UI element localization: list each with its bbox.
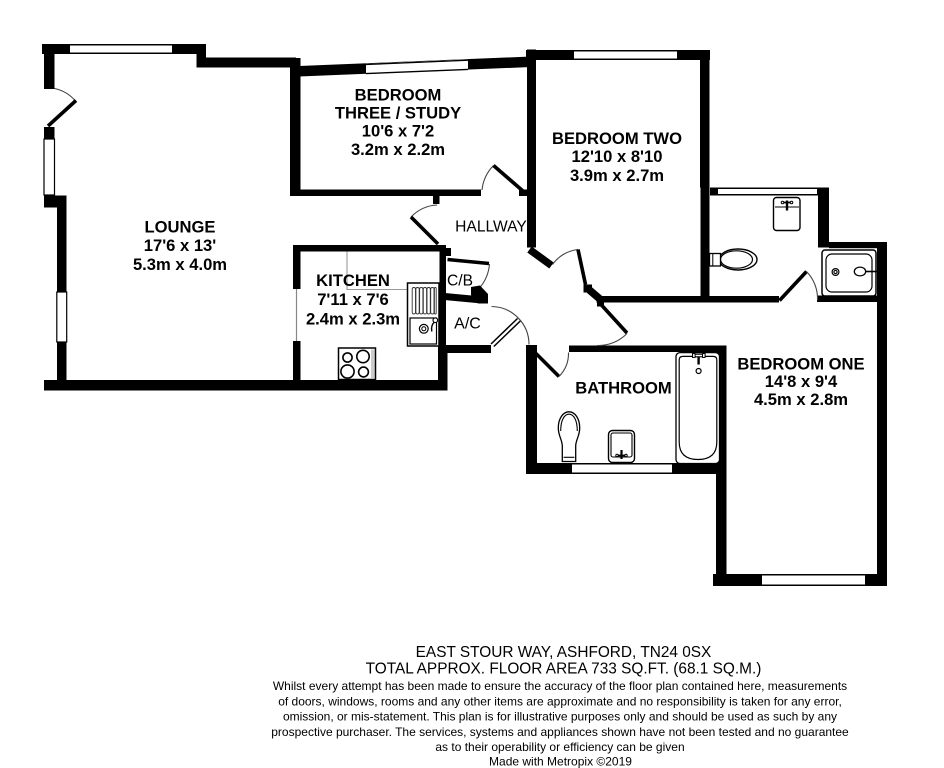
- svg-text:3.9m x 2.7m: 3.9m x 2.7m: [570, 166, 664, 185]
- svg-text:BEDROOM ONE: BEDROOM ONE: [737, 355, 864, 374]
- svg-text:5.3m x 4.0m: 5.3m x 4.0m: [133, 255, 227, 274]
- svg-text:Whilst every attempt has been: Whilst every attempt has been made to en…: [273, 679, 847, 693]
- svg-text:3.2m x 2.2m: 3.2m x 2.2m: [351, 140, 445, 159]
- svg-text:EAST STOUR WAY, ASHFORD, TN24: EAST STOUR WAY, ASHFORD, TN24 0SX: [416, 644, 712, 661]
- svg-text:prospective purchaser. The ser: prospective purchaser. The services, sys…: [271, 725, 849, 739]
- svg-text:BEDROOM: BEDROOM: [355, 86, 442, 105]
- svg-text:LOUNGE: LOUNGE: [145, 218, 216, 237]
- svg-text:7'11 x 7'6: 7'11 x 7'6: [317, 290, 389, 309]
- svg-text:THREE / STUDY: THREE / STUDY: [335, 104, 461, 123]
- svg-text:12'10 x 8'10: 12'10 x 8'10: [572, 147, 663, 166]
- svg-text:14'8 x 9'4: 14'8 x 9'4: [765, 372, 838, 391]
- svg-text:2.4m x 2.3m: 2.4m x 2.3m: [306, 310, 400, 329]
- svg-text:4.5m x 2.8m: 4.5m x 2.8m: [754, 390, 848, 409]
- svg-text:as to their operability or eff: as to their operability or efficiency ca…: [435, 740, 684, 754]
- svg-text:of doors, windows, rooms and a: of doors, windows, rooms and any other i…: [278, 694, 842, 708]
- svg-text:TOTAL APPROX. FLOOR AREA 733 S: TOTAL APPROX. FLOOR AREA 733 SQ.FT. (68.…: [366, 661, 762, 678]
- svg-text:17'6 x 13': 17'6 x 13': [144, 236, 217, 255]
- svg-text:BATHROOM: BATHROOM: [575, 379, 671, 398]
- svg-text:omission, or mis-statement. Th: omission, or mis-statement. This plan is…: [283, 710, 837, 724]
- svg-text:Made with Metropix ©2019: Made with Metropix ©2019: [489, 755, 632, 768]
- svg-text:A/C: A/C: [454, 316, 481, 333]
- svg-text:HALLWAY: HALLWAY: [455, 219, 527, 236]
- svg-text:C/B: C/B: [447, 273, 473, 290]
- svg-text:KITCHEN: KITCHEN: [316, 271, 390, 290]
- svg-text:BEDROOM TWO: BEDROOM TWO: [552, 129, 682, 148]
- svg-text:10'6 x 7'2: 10'6 x 7'2: [362, 122, 434, 141]
